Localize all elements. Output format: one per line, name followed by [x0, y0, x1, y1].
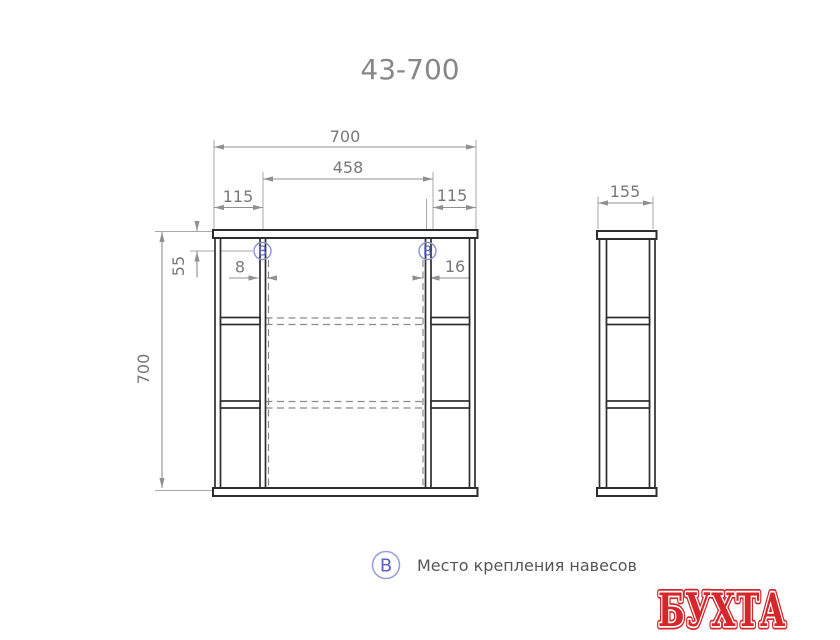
dimension-right-offset: 115: [433, 186, 476, 208]
front-view: 700 458 115 115 700: [134, 127, 478, 496]
front-structure: [213, 230, 478, 496]
dimension-hanger-span: 458: [263, 158, 433, 179]
dimension-left-hanger-inset: 8: [229, 258, 274, 279]
front-left-partition: [260, 238, 266, 488]
side-extension-lines: [598, 197, 653, 230]
front-top-panel: [213, 230, 478, 238]
front-hidden-lines: [266, 260, 429, 487]
dimension-left-offset: 115: [214, 187, 263, 208]
technical-drawing: 43-700 700 458: [0, 0, 840, 640]
side-back-panel: [600, 239, 607, 488]
dim-label-hanger-from-top: 55: [169, 256, 188, 276]
legend: B Место крепления навесов: [373, 552, 637, 579]
dimension-depth: 155: [598, 182, 653, 203]
dim-label-right-hanger-inset: 16: [445, 257, 465, 276]
side-structure: [597, 231, 657, 496]
page-title: 43-700: [360, 53, 459, 86]
hanger-marker-left-letter: B: [258, 245, 267, 260]
side-top-panel: [597, 231, 657, 239]
side-bottom-panel: [597, 488, 657, 496]
hanger-marker-right: B: [419, 243, 436, 260]
side-shelf-upper: [607, 318, 650, 325]
brand-logo: БУХТА БУХТА БУХТА: [658, 583, 786, 637]
front-right-wall: [470, 238, 476, 488]
side-shelf-lower: [607, 401, 650, 408]
dim-label-left-hanger-inset: 8: [235, 258, 245, 277]
legend-label: Место крепления навесов: [417, 556, 637, 575]
front-shelf-right-lower: [431, 401, 470, 408]
dim-label-left-offset: 115: [223, 187, 254, 206]
dim-label-right-offset: 115: [437, 186, 468, 205]
dimension-overall-height: 700: [134, 232, 162, 488]
dim-label-overall-width: 700: [330, 127, 361, 146]
front-right-partition: [426, 238, 432, 488]
dim-label-depth: 155: [610, 182, 641, 201]
front-shelf-left-lower: [221, 401, 261, 408]
dimension-overall-width: 700: [214, 127, 476, 147]
side-front-edge: [650, 239, 656, 488]
front-left-wall: [215, 238, 221, 488]
legend-marker-letter: B: [380, 556, 392, 577]
brand-logo-text: БУХТА: [658, 583, 786, 637]
hanger-marker-left: B: [254, 243, 271, 260]
front-shelf-right-upper: [431, 318, 470, 325]
front-shelf-left-upper: [221, 318, 261, 325]
drawing-sheet: 43-700 700 458: [0, 0, 840, 640]
dim-label-hanger-span: 458: [333, 158, 364, 177]
front-bottom-panel: [213, 488, 478, 496]
dimension-right-hanger-inset: 16: [413, 257, 469, 278]
side-view: 155: [597, 182, 657, 496]
hanger-marker-right-letter: B: [423, 245, 432, 260]
dim-label-overall-height: 700: [134, 354, 153, 385]
